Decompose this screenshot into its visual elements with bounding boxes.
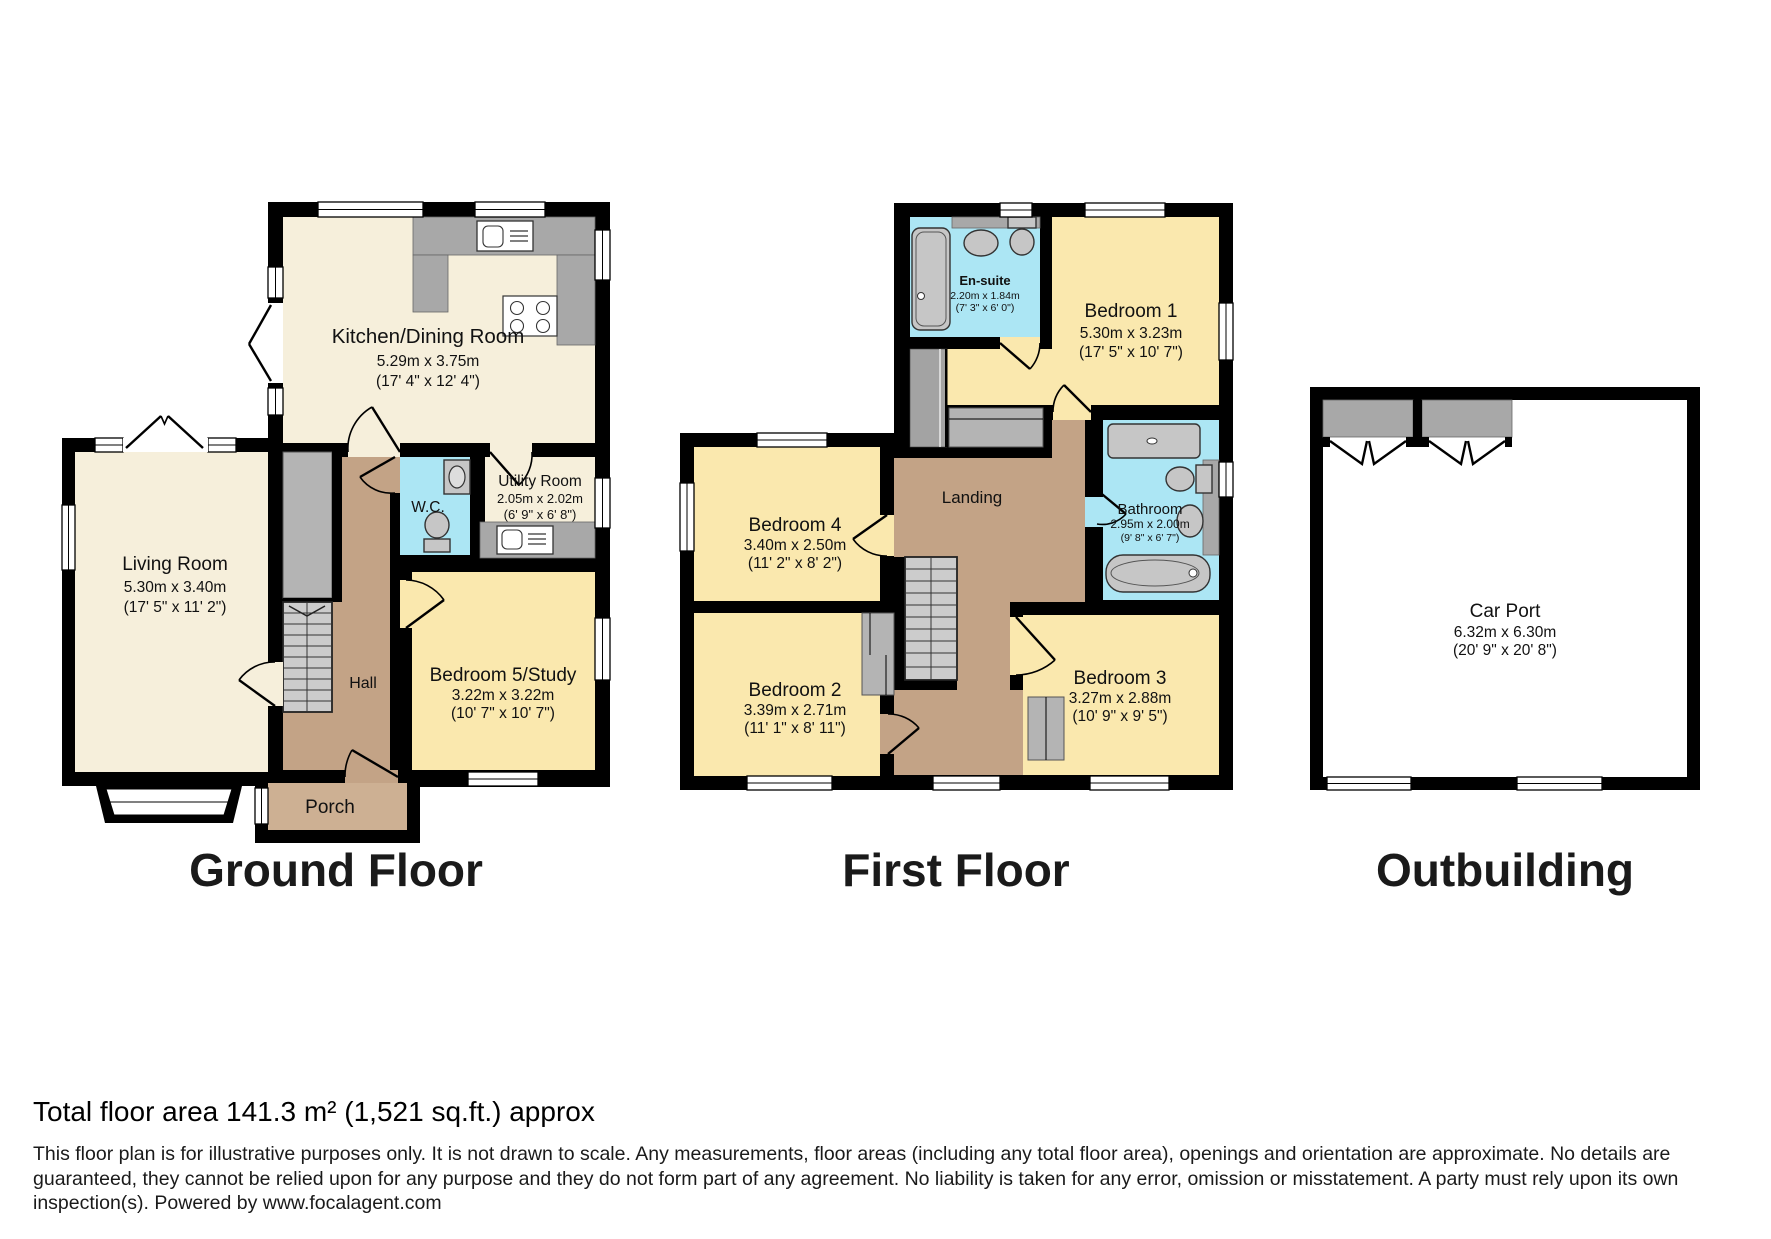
window bbox=[475, 202, 545, 217]
french-doors bbox=[249, 303, 283, 383]
label-bedroom1: Bedroom 1 5.30m x 3.23m (17' 5" x 10' 7"… bbox=[1079, 301, 1183, 361]
window bbox=[1219, 462, 1233, 497]
window bbox=[468, 772, 538, 786]
svg-text:Bedroom 3: Bedroom 3 bbox=[1074, 668, 1167, 689]
svg-text:(6' 9" x 6' 8"): (6' 9" x 6' 8") bbox=[504, 507, 577, 522]
svg-text:2.05m x 2.02m: 2.05m x 2.02m bbox=[497, 491, 583, 506]
first-floor-plan: En-suite 2.20m x 1.84m (7' 3" x 6' 0") B… bbox=[670, 195, 1245, 855]
window bbox=[1000, 203, 1032, 217]
floorplan-page: Kitchen/Dining Room 5.29m x 3.75m (17' 4… bbox=[0, 0, 1771, 1239]
svg-text:Porch: Porch bbox=[305, 797, 355, 818]
utility-counter bbox=[480, 522, 595, 558]
window bbox=[95, 438, 123, 452]
label-wc: W.C. bbox=[411, 499, 445, 516]
svg-text:5.30m x 3.40m: 5.30m x 3.40m bbox=[124, 579, 227, 596]
svg-text:(9' 8" x 6' 7"): (9' 8" x 6' 7") bbox=[1121, 532, 1180, 544]
label-utility: Utility Room 2.05m x 2.02m (6' 9" x 6' 8… bbox=[497, 473, 583, 522]
svg-text:(17' 5" x 11' 2"): (17' 5" x 11' 2") bbox=[124, 599, 227, 616]
window bbox=[268, 388, 283, 415]
wc-toilet-icon bbox=[424, 512, 450, 552]
svg-text:2.95m x 2.00m: 2.95m x 2.00m bbox=[1110, 517, 1189, 531]
window bbox=[255, 788, 268, 824]
window bbox=[595, 230, 610, 280]
svg-text:(17' 5" x 10' 7"): (17' 5" x 10' 7") bbox=[1079, 344, 1183, 361]
bedroom2-wardrobe bbox=[862, 613, 894, 695]
svg-text:Utility Room: Utility Room bbox=[498, 473, 582, 490]
svg-text:Bedroom 4: Bedroom 4 bbox=[749, 515, 842, 536]
stairwell-void bbox=[910, 349, 947, 447]
room-bedroom1 bbox=[947, 349, 1052, 405]
window bbox=[1517, 777, 1602, 790]
kitchen-sink-icon bbox=[477, 221, 533, 251]
label-bathroom: Bathroom 2.95m x 2.00m (9' 8" x 6' 7") bbox=[1110, 501, 1189, 544]
window bbox=[1090, 776, 1169, 790]
svg-text:3.40m x 2.50m: 3.40m x 2.50m bbox=[744, 537, 847, 554]
svg-text:(17' 4" x 12' 4"): (17' 4" x 12' 4") bbox=[376, 373, 480, 390]
window bbox=[62, 505, 75, 570]
svg-text:Bedroom 2: Bedroom 2 bbox=[749, 680, 842, 701]
window bbox=[680, 483, 694, 551]
outbuilding-title: Outbuilding bbox=[1376, 843, 1634, 897]
wc-sink-icon bbox=[444, 460, 470, 494]
svg-text:En-suite: En-suite bbox=[959, 273, 1010, 288]
carport-canopy bbox=[1422, 400, 1512, 437]
svg-text:Kitchen/Dining Room: Kitchen/Dining Room bbox=[332, 325, 525, 348]
staircase bbox=[283, 602, 332, 712]
first-floor-title: First Floor bbox=[842, 843, 1069, 897]
svg-text:(10' 7" x 10' 7"): (10' 7" x 10' 7") bbox=[451, 705, 555, 722]
ensuite-toilet-icon bbox=[1008, 217, 1036, 255]
window bbox=[747, 776, 832, 790]
svg-text:5.30m x 3.23m: 5.30m x 3.23m bbox=[1080, 325, 1183, 342]
svg-text:Hall: Hall bbox=[349, 675, 377, 692]
svg-text:Living Room: Living Room bbox=[122, 554, 228, 575]
ensuite-sink-icon bbox=[964, 230, 998, 256]
room-landing bbox=[957, 555, 1085, 602]
bedroom1-wardrobe bbox=[949, 408, 1043, 447]
label-hall: Hall bbox=[349, 675, 377, 692]
total-floor-area: Total floor area 141.3 m² (1,521 sq.ft.)… bbox=[33, 1096, 595, 1128]
ground-floor-plan: Kitchen/Dining Room 5.29m x 3.75m (17' 4… bbox=[50, 195, 625, 855]
room-landing bbox=[1052, 420, 1085, 458]
window bbox=[318, 202, 423, 217]
window bbox=[208, 438, 236, 452]
label-porch: Porch bbox=[305, 797, 355, 818]
svg-text:5.29m x 3.75m: 5.29m x 3.75m bbox=[377, 353, 480, 370]
svg-text:3.27m x 2.88m: 3.27m x 2.88m bbox=[1069, 690, 1172, 707]
shower-icon bbox=[1108, 424, 1200, 458]
window bbox=[595, 618, 610, 680]
svg-text:2.20m x 1.84m: 2.20m x 1.84m bbox=[950, 290, 1020, 302]
hall-cupboard bbox=[283, 452, 332, 598]
outbuilding-plan: Car Port 6.32m x 6.30m (20' 9" x 20' 8") bbox=[1290, 380, 1715, 800]
svg-text:(7' 3" x 6' 0"): (7' 3" x 6' 0") bbox=[956, 302, 1015, 314]
svg-text:Landing: Landing bbox=[942, 488, 1003, 507]
label-bedroom4: Bedroom 4 3.40m x 2.50m (11' 2" x 8' 2") bbox=[744, 515, 847, 572]
svg-text:W.C.: W.C. bbox=[411, 499, 445, 516]
svg-text:(11' 1" x 8' 11"): (11' 1" x 8' 11") bbox=[744, 720, 846, 737]
outbuilding-walls bbox=[1310, 387, 1700, 790]
svg-text:(11' 2" x 8' 2"): (11' 2" x 8' 2") bbox=[748, 555, 842, 572]
room-landing bbox=[957, 602, 1010, 692]
upper-staircase bbox=[905, 557, 957, 680]
room-landing bbox=[894, 458, 1085, 557]
label-living: Living Room 5.30m x 3.40m (17' 5" x 11' … bbox=[122, 554, 228, 616]
svg-text:Bedroom 1: Bedroom 1 bbox=[1085, 301, 1178, 322]
ensuite-bath-icon bbox=[912, 228, 950, 330]
svg-text:(20' 9" x 20' 8"): (20' 9" x 20' 8") bbox=[1453, 642, 1557, 659]
carport-canopy bbox=[1323, 400, 1413, 437]
svg-text:Bathroom: Bathroom bbox=[1117, 501, 1182, 518]
window bbox=[268, 267, 283, 298]
svg-text:(10' 9" x 9' 5"): (10' 9" x 9' 5") bbox=[1072, 708, 1167, 725]
label-bedroom2: Bedroom 2 3.39m x 2.71m (11' 1" x 8' 11"… bbox=[744, 680, 847, 737]
window bbox=[933, 776, 1000, 790]
window bbox=[1327, 777, 1411, 790]
label-landing: Landing bbox=[942, 488, 1003, 507]
window bbox=[757, 433, 827, 447]
window bbox=[595, 478, 610, 528]
svg-text:Bedroom 5/Study: Bedroom 5/Study bbox=[430, 665, 577, 686]
svg-text:6.32m x 6.30m: 6.32m x 6.30m bbox=[1454, 624, 1557, 641]
bath-icon bbox=[1106, 555, 1210, 592]
svg-text:Car Port: Car Port bbox=[1470, 601, 1541, 622]
svg-text:3.39m x 2.71m: 3.39m x 2.71m bbox=[744, 702, 847, 719]
window bbox=[1219, 303, 1233, 360]
window bbox=[1085, 203, 1165, 217]
label-ensuite: En-suite 2.20m x 1.84m (7' 3" x 6' 0") bbox=[950, 273, 1020, 314]
bathroom-toilet-icon bbox=[1166, 465, 1212, 493]
patio-doors bbox=[123, 416, 208, 452]
svg-text:3.22m x 3.22m: 3.22m x 3.22m bbox=[452, 687, 555, 704]
room-carport bbox=[1323, 400, 1687, 777]
disclaimer-text: This floor plan is for illustrative purp… bbox=[33, 1142, 1761, 1216]
ground-floor-title: Ground Floor bbox=[189, 843, 483, 897]
label-bedroom3: Bedroom 3 3.27m x 2.88m (10' 9" x 9' 5") bbox=[1069, 668, 1172, 725]
